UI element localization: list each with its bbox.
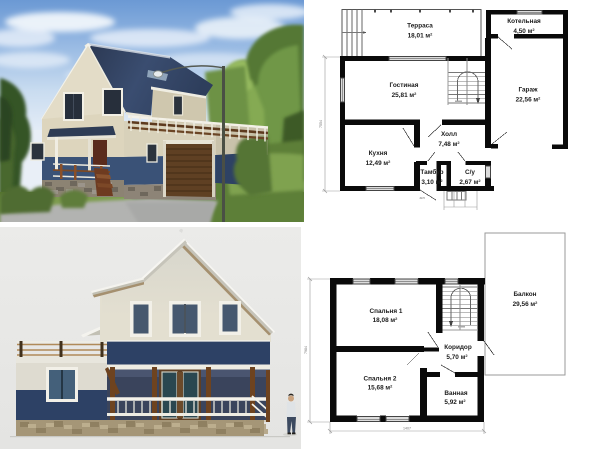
svg-text:3,10 м2: 3,10 м2	[421, 178, 443, 186]
svg-text:7984: 7984	[304, 346, 308, 354]
svg-text:18,08 м2: 18,08 м2	[373, 316, 399, 324]
svg-text:Спальня 2: Спальня 2	[364, 376, 397, 383]
svg-text:С/у: С/у	[465, 169, 475, 176]
svg-text:Терраса: Терраса	[407, 23, 433, 30]
svg-text:Кухня: Кухня	[369, 150, 388, 157]
svg-text:7554: 7554	[319, 120, 323, 128]
svg-text:Холл: Холл	[441, 131, 457, 138]
svg-text:Котельная: Котельная	[507, 18, 541, 25]
svg-text:Балкон: Балкон	[513, 291, 536, 298]
svg-text:Ванная: Ванная	[444, 390, 467, 397]
svg-text:7,48 м2: 7,48 м2	[438, 140, 460, 148]
svg-text:5,92 м2: 5,92 м2	[444, 398, 466, 406]
svg-text:25,81 м2: 25,81 м2	[392, 91, 418, 99]
svg-text:Спальня 1: Спальня 1	[370, 308, 403, 315]
svg-text:зкл: зкл	[419, 196, 424, 200]
svg-text:Коридор: Коридор	[444, 344, 472, 351]
svg-text:Тамбур: Тамбур	[420, 168, 443, 176]
svg-text:12,49 м2: 12,49 м2	[366, 159, 392, 167]
svg-text:22,56 м2: 22,56 м2	[516, 96, 542, 104]
svg-text:4,50 м2: 4,50 м2	[513, 27, 535, 35]
svg-text:1407: 1407	[403, 427, 411, 431]
svg-text:2,67 м2: 2,67 м2	[459, 178, 481, 186]
svg-text:29,56 м2: 29,56 м2	[513, 300, 539, 308]
svg-text:15,68 м2: 15,68 м2	[368, 384, 394, 392]
svg-text:Гараж: Гараж	[518, 87, 538, 94]
svg-text:5,70 м2: 5,70 м2	[446, 353, 468, 361]
svg-text:Гостиная: Гостиная	[390, 82, 419, 89]
svg-text:18,01 м2: 18,01 м2	[408, 32, 434, 40]
